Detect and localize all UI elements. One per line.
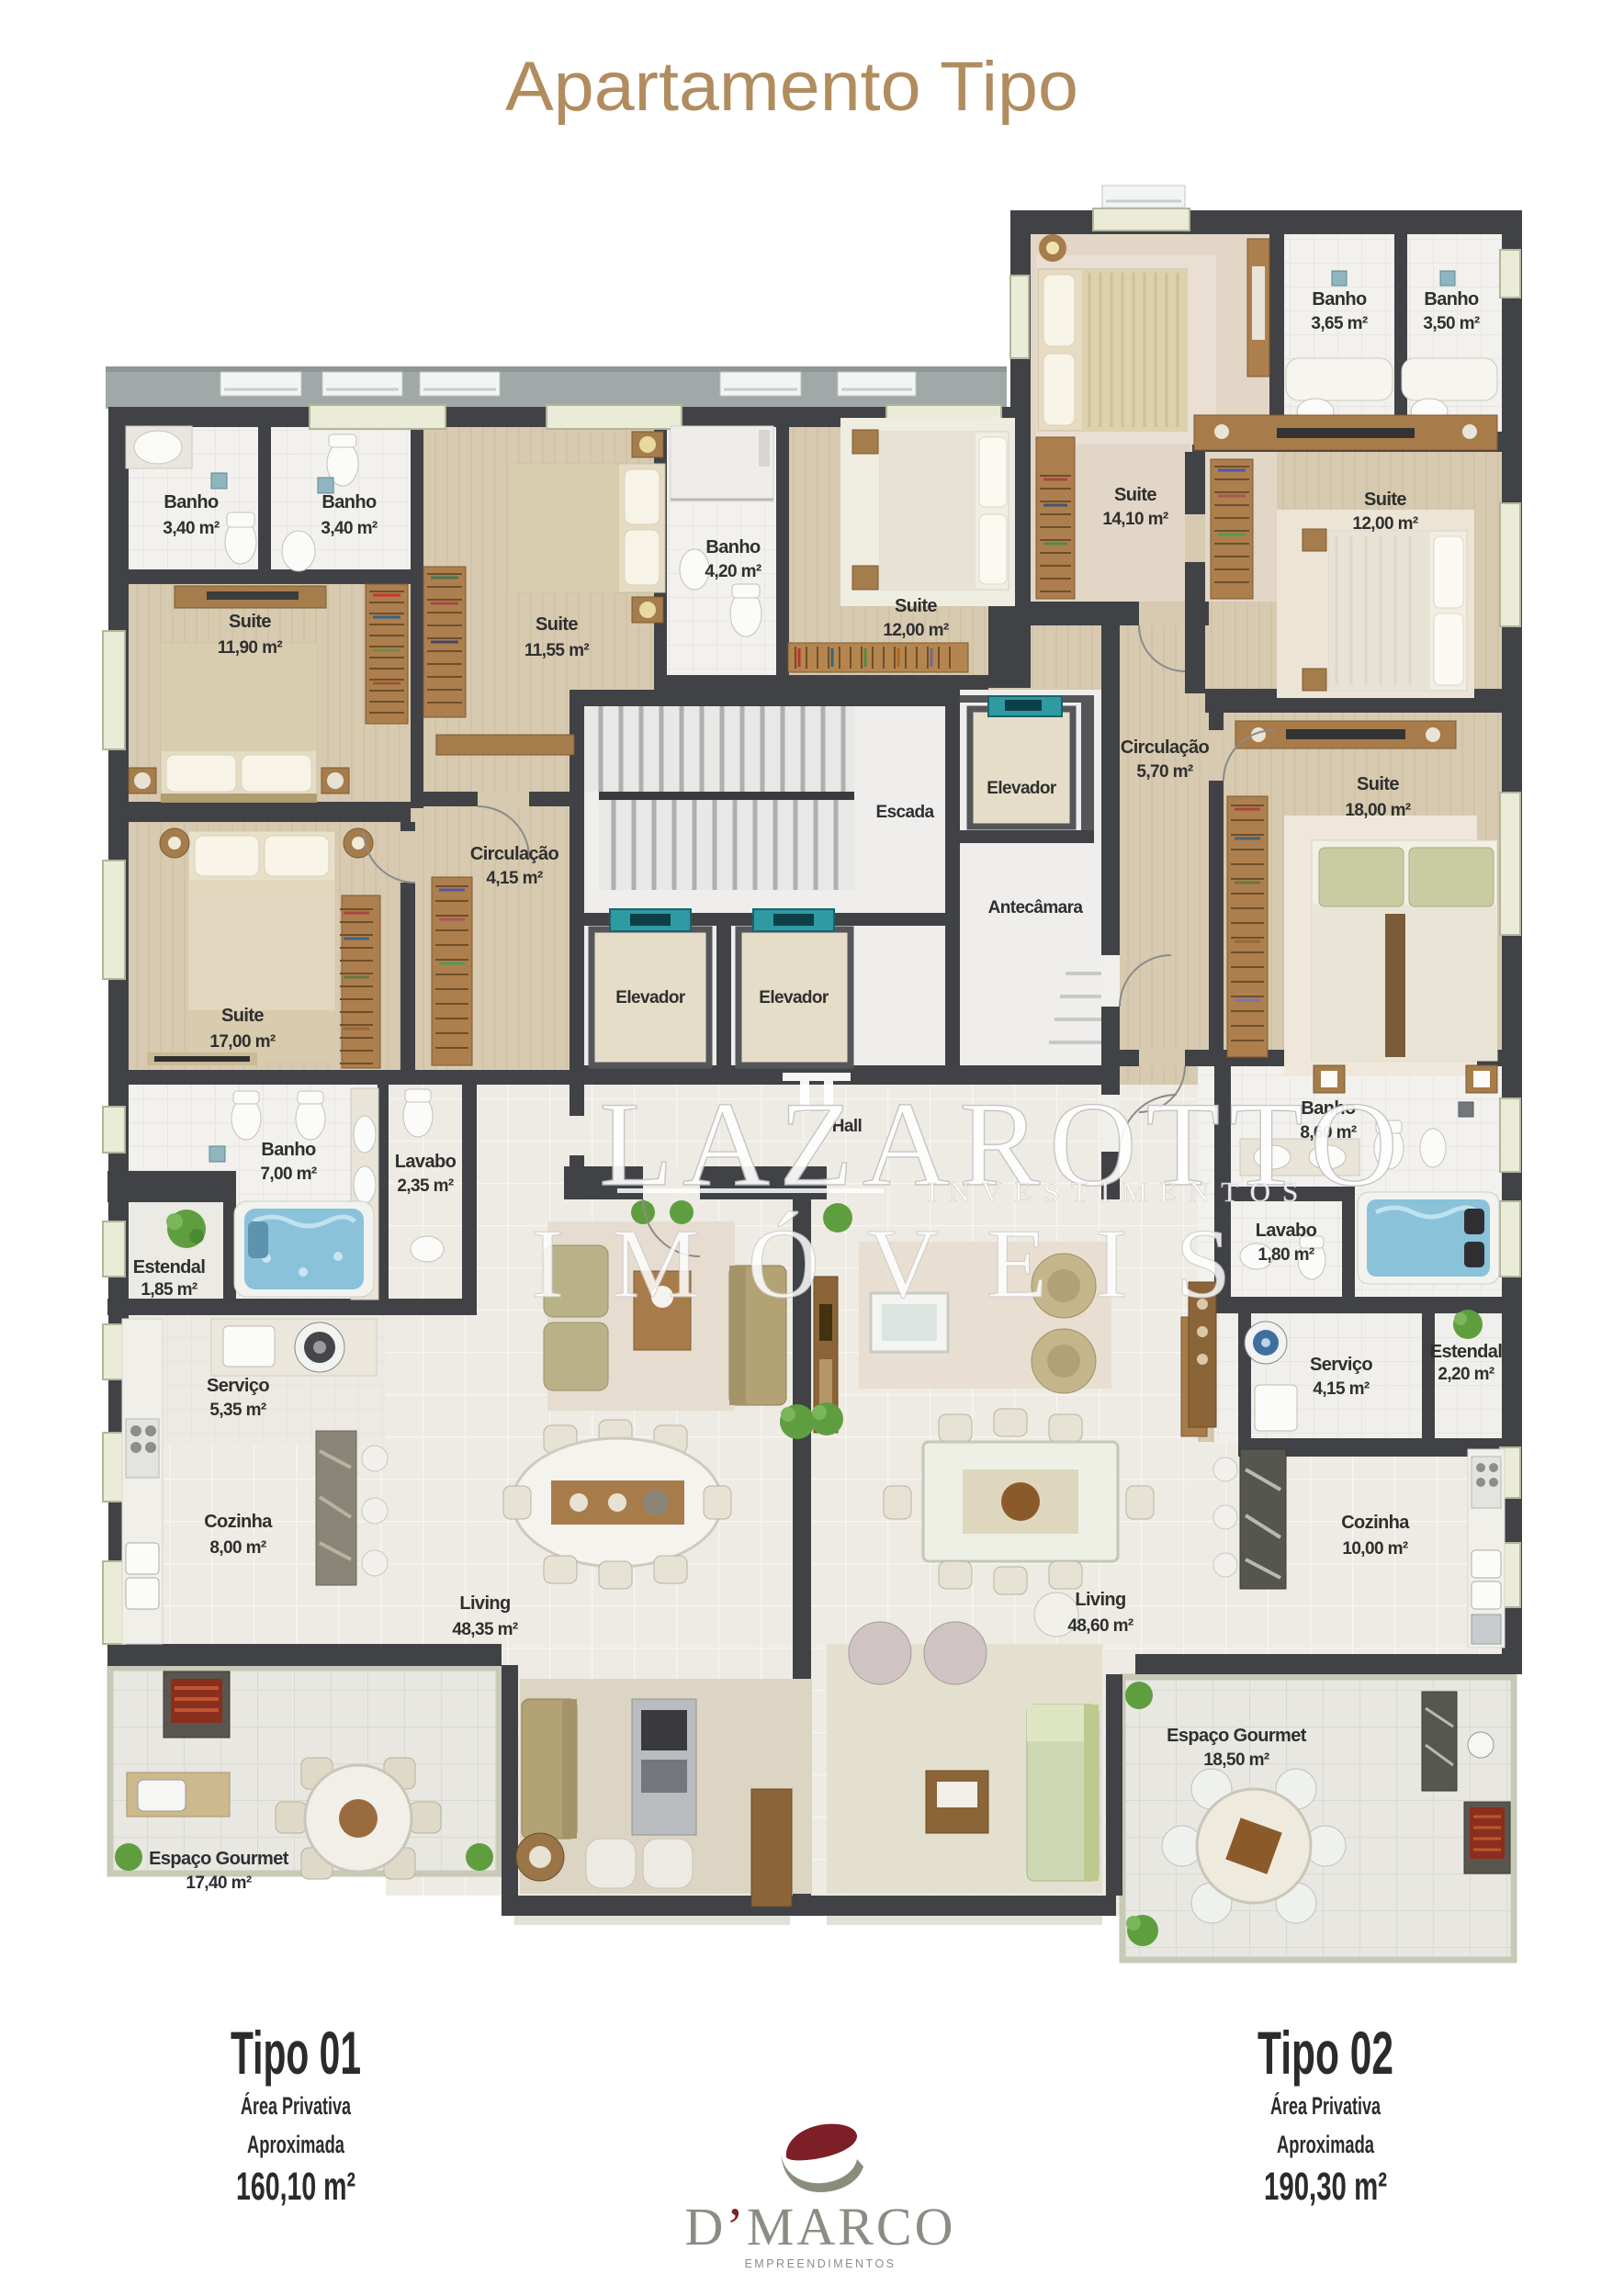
svg-text:8,00 m²: 8,00 m²	[209, 1538, 266, 1558]
svg-text:Suite: Suite	[221, 1006, 264, 1026]
svg-text:Circulação: Circulação	[1121, 737, 1210, 758]
svg-text:Suite: Suite	[1357, 774, 1399, 794]
svg-text:Suite: Suite	[1364, 490, 1406, 510]
svg-text:17,00 m²: 17,00 m²	[209, 1032, 276, 1052]
svg-text:Elevador: Elevador	[759, 988, 829, 1007]
svg-text:18,00 m²: 18,00 m²	[1345, 801, 1411, 820]
svg-text:IMÓVEIS: IMÓVEIS	[531, 1210, 1279, 1319]
svg-text:Estendal: Estendal	[133, 1257, 206, 1277]
svg-text:3,65 m²: 3,65 m²	[1311, 314, 1368, 333]
svg-text:Área Privativa: Área Privativa	[241, 2091, 352, 2120]
svg-text:Elevador: Elevador	[987, 779, 1057, 798]
svg-text:4,15 m²: 4,15 m²	[486, 869, 543, 888]
svg-text:Banho: Banho	[705, 537, 761, 557]
svg-text:INVESTIMENTOS: INVESTIMENTOS	[928, 1176, 1310, 1208]
svg-text:5,35 m²: 5,35 m²	[209, 1401, 266, 1420]
svg-text:Banho: Banho	[1424, 289, 1479, 310]
svg-text:3,40 m²: 3,40 m²	[321, 519, 378, 538]
svg-text:D’MARCO: D’MARCO	[685, 2197, 956, 2257]
svg-text:Serviço: Serviço	[1310, 1355, 1372, 1375]
svg-text:Banho: Banho	[164, 492, 219, 512]
svg-text:3,50 m²: 3,50 m²	[1423, 314, 1480, 333]
svg-text:7,00 m²: 7,00 m²	[260, 1165, 317, 1184]
svg-text:4,15 m²: 4,15 m²	[1313, 1379, 1370, 1399]
svg-text:Escada: Escada	[876, 803, 935, 822]
svg-text:2,35 m²: 2,35 m²	[397, 1176, 454, 1196]
svg-text:Elevador: Elevador	[615, 988, 686, 1007]
svg-text:Banho: Banho	[261, 1140, 316, 1160]
svg-text:17,40 m²: 17,40 m²	[186, 1874, 252, 1893]
svg-text:Serviço: Serviço	[207, 1376, 269, 1396]
svg-text:Aproximada: Aproximada	[247, 2131, 345, 2158]
svg-text:Lavabo: Lavabo	[395, 1152, 457, 1172]
svg-text:2,20 m²: 2,20 m²	[1438, 1365, 1494, 1384]
svg-text:4,20 m²: 4,20 m²	[705, 562, 761, 581]
svg-text:EMPREENDIMENTOS: EMPREENDIMENTOS	[744, 2257, 896, 2270]
svg-text:Living: Living	[459, 1593, 510, 1614]
svg-text:Estendal: Estendal	[1430, 1342, 1503, 1362]
svg-text:Suite: Suite	[536, 614, 578, 635]
svg-text:14,10 m²: 14,10 m²	[1102, 510, 1168, 529]
svg-text:48,60 m²: 48,60 m²	[1067, 1616, 1133, 1636]
svg-text:Banho: Banho	[1312, 289, 1367, 310]
svg-text:Suite: Suite	[229, 612, 271, 632]
svg-text:Cozinha: Cozinha	[1341, 1513, 1410, 1533]
svg-text:Circulação: Circulação	[470, 844, 559, 864]
svg-text:5,70 m²: 5,70 m²	[1136, 762, 1193, 782]
svg-text:3,40 m²: 3,40 m²	[163, 519, 220, 538]
svg-text:12,00 m²: 12,00 m²	[883, 621, 949, 640]
svg-text:Aproximada: Aproximada	[1277, 2131, 1375, 2158]
svg-text:18,50 m²: 18,50 m²	[1203, 1750, 1269, 1770]
svg-text:Living: Living	[1075, 1590, 1125, 1610]
svg-text:Tipo 02: Tipo 02	[1257, 2019, 1393, 2087]
svg-text:Tipo 01: Tipo 01	[231, 2019, 361, 2087]
svg-text:Área Privativa: Área Privativa	[1270, 2091, 1382, 2120]
svg-text:Banho: Banho	[321, 492, 377, 512]
svg-text:11,55 m²: 11,55 m²	[524, 641, 589, 660]
svg-text:48,35 m²: 48,35 m²	[452, 1620, 518, 1639]
svg-text:190,30 m²: 190,30 m²	[1264, 2165, 1387, 2209]
svg-text:160,10 m²: 160,10 m²	[236, 2165, 355, 2209]
svg-text:Suite: Suite	[895, 596, 937, 616]
svg-text:Suite: Suite	[1114, 485, 1156, 505]
svg-text:Espaço Gourmet: Espaço Gourmet	[149, 1849, 289, 1869]
svg-text:Apartamento Tipo: Apartamento Tipo	[505, 48, 1078, 126]
svg-text:1,85 m²: 1,85 m²	[141, 1280, 197, 1300]
svg-text:12,00 m²: 12,00 m²	[1352, 514, 1418, 534]
svg-text:11,90 m²: 11,90 m²	[218, 638, 282, 658]
svg-text:Antecâmara: Antecâmara	[988, 898, 1084, 917]
svg-text:Espaço Gourmet: Espaço Gourmet	[1167, 1726, 1307, 1746]
svg-text:10,00 m²: 10,00 m²	[1342, 1539, 1408, 1559]
svg-text:Cozinha: Cozinha	[204, 1512, 273, 1532]
